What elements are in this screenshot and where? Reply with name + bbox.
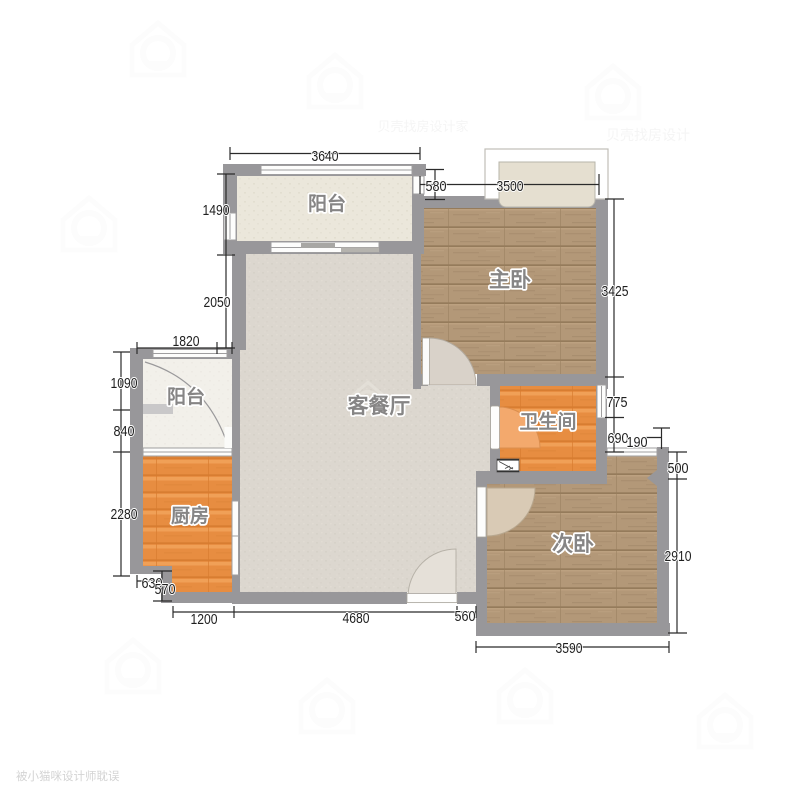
svg-text:775: 775 xyxy=(607,394,628,411)
svg-text:被小猫咪设计师耽误: 被小猫咪设计师耽误 xyxy=(16,769,120,783)
svg-text:1820: 1820 xyxy=(173,333,200,350)
svg-text:厨房: 厨房 xyxy=(171,504,209,527)
svg-text:2050: 2050 xyxy=(204,294,231,311)
svg-text:2910: 2910 xyxy=(665,548,692,565)
svg-text:贝壳找房设计家: 贝壳找房设计家 xyxy=(377,119,468,134)
svg-text:570: 570 xyxy=(155,581,176,598)
svg-text:500: 500 xyxy=(668,460,689,477)
svg-text:1200: 1200 xyxy=(191,611,218,628)
svg-text:主卧: 主卧 xyxy=(489,269,531,292)
svg-text:3500: 3500 xyxy=(497,178,524,195)
svg-text:1090: 1090 xyxy=(111,375,138,392)
svg-text:580: 580 xyxy=(426,178,447,195)
svg-text:贝壳找房设计: 贝壳找房设计 xyxy=(606,127,690,143)
svg-text:560: 560 xyxy=(455,608,476,625)
svg-text:阳台: 阳台 xyxy=(167,385,205,408)
svg-text:3425: 3425 xyxy=(602,283,629,300)
svg-text:2280: 2280 xyxy=(111,506,138,523)
svg-text:840: 840 xyxy=(114,423,135,440)
svg-text:1490: 1490 xyxy=(203,202,230,219)
svg-text:客餐厅: 客餐厅 xyxy=(348,394,411,418)
svg-text:190: 190 xyxy=(627,434,648,451)
svg-text:3640: 3640 xyxy=(312,148,339,165)
svg-text:卫生间: 卫生间 xyxy=(519,410,576,433)
svg-text:4680: 4680 xyxy=(343,610,370,627)
svg-text:3590: 3590 xyxy=(556,640,583,657)
svg-text:次卧: 次卧 xyxy=(552,532,594,556)
svg-text:690: 690 xyxy=(608,430,629,447)
svg-text:阳台: 阳台 xyxy=(308,192,346,215)
